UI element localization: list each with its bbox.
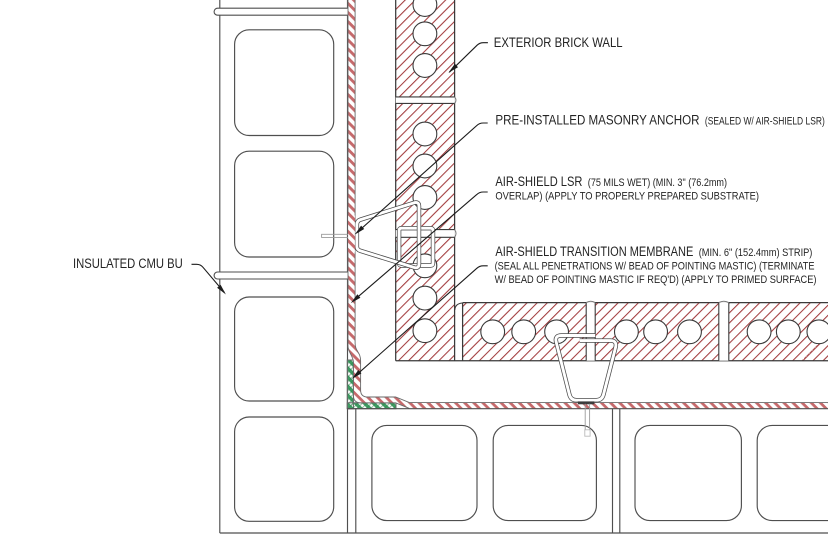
svg-text:AIR-SHIELD TRANSITION MEMBRANE: AIR-SHIELD TRANSITION MEMBRANE — [495, 244, 693, 259]
svg-text:PRE-INSTALLED MASONRY ANCHOR: PRE-INSTALLED MASONRY ANCHOR — [495, 113, 699, 128]
svg-text:(MIN. 6" (152.4mm) STRIP): (MIN. 6" (152.4mm) STRIP) — [699, 247, 813, 259]
svg-text:AIR-SHIELD LSR: AIR-SHIELD LSR — [495, 174, 582, 189]
svg-text:INSULATED CMU BU: INSULATED CMU BU — [73, 256, 183, 271]
svg-text:OVERLAP) (APPLY TO PROPERLY PR: OVERLAP) (APPLY TO PROPERLY PREPARED SUB… — [495, 191, 759, 203]
svg-text:(SEALED W/ AIR-SHIELD LSR): (SEALED W/ AIR-SHIELD LSR) — [705, 116, 825, 128]
svg-text:W/ BEAD OF POINTING MASTIC IF: W/ BEAD OF POINTING MASTIC IF REQ'D) (AP… — [495, 274, 817, 286]
svg-text:(SEAL ALL PENETRATIONS W/ BEAD: (SEAL ALL PENETRATIONS W/ BEAD OF POINTI… — [495, 261, 815, 273]
svg-text:(75 MILS WET) (MIN. 3" (76.2mm: (75 MILS WET) (MIN. 3" (76.2mm) — [588, 177, 727, 189]
svg-text:EXTERIOR BRICK WALL: EXTERIOR BRICK WALL — [494, 35, 623, 50]
